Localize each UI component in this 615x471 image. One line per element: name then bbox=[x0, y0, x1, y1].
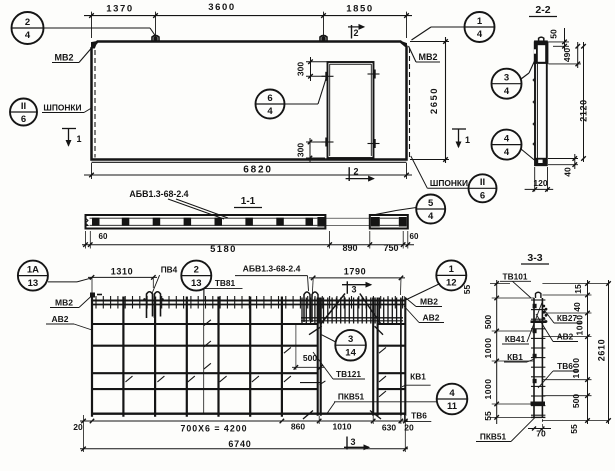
svg-text:5180: 5180 bbox=[210, 244, 237, 255]
svg-text:1370: 1370 bbox=[106, 4, 134, 15]
svg-text:55: 55 bbox=[569, 424, 579, 434]
svg-text:ШПОНКИ: ШПОНКИ bbox=[430, 178, 468, 188]
svg-text:6: 6 bbox=[267, 93, 272, 104]
svg-text:МВ2: МВ2 bbox=[418, 52, 437, 62]
svg-text:2650: 2650 bbox=[429, 87, 440, 114]
svg-text:6740: 6740 bbox=[228, 439, 251, 449]
svg-text:АВ2: АВ2 bbox=[51, 314, 68, 324]
svg-text:2: 2 bbox=[194, 264, 199, 275]
svg-text:4: 4 bbox=[504, 147, 510, 158]
svg-text:3600: 3600 bbox=[208, 2, 236, 13]
svg-text:2: 2 bbox=[25, 17, 30, 28]
svg-text:МВ2: МВ2 bbox=[420, 297, 438, 307]
svg-text:15: 15 bbox=[573, 284, 583, 294]
svg-text:860: 860 bbox=[291, 422, 305, 432]
svg-text:1: 1 bbox=[465, 135, 470, 145]
svg-text:6: 6 bbox=[480, 191, 485, 202]
svg-text:КВ1: КВ1 bbox=[410, 372, 426, 382]
svg-text:ТВ81: ТВ81 bbox=[215, 278, 236, 288]
svg-text:300: 300 bbox=[296, 143, 306, 157]
svg-text:4: 4 bbox=[504, 133, 510, 144]
svg-text:20: 20 bbox=[73, 422, 83, 432]
svg-text:890: 890 bbox=[342, 243, 357, 253]
svg-text:II: II bbox=[21, 101, 26, 112]
svg-text:750: 750 bbox=[383, 243, 398, 253]
svg-text:4: 4 bbox=[477, 29, 483, 40]
svg-text:2610: 2610 bbox=[597, 339, 607, 361]
svg-text:60: 60 bbox=[99, 232, 108, 241]
svg-text:4: 4 bbox=[267, 106, 273, 117]
svg-text:1: 1 bbox=[77, 134, 82, 144]
svg-text:ТВ101: ТВ101 bbox=[503, 272, 528, 282]
svg-text:500: 500 bbox=[571, 394, 581, 408]
svg-text:14: 14 bbox=[345, 347, 356, 358]
svg-text:12: 12 bbox=[446, 278, 457, 289]
svg-text:ШПОНКИ: ШПОНКИ bbox=[43, 103, 81, 113]
svg-text:630: 630 bbox=[382, 423, 396, 433]
svg-text:55: 55 bbox=[462, 285, 472, 295]
svg-text:500: 500 bbox=[483, 315, 493, 329]
svg-text:1850: 1850 bbox=[346, 4, 374, 15]
svg-text:ТВ6: ТВ6 bbox=[411, 410, 427, 420]
svg-text:700Х6 = 4200: 700Х6 = 4200 bbox=[180, 424, 247, 434]
svg-text:1000: 1000 bbox=[483, 379, 493, 400]
svg-text:2: 2 bbox=[353, 167, 358, 177]
svg-text:2120: 2120 bbox=[579, 99, 589, 121]
svg-text:13: 13 bbox=[28, 278, 39, 289]
svg-text:КВ27: КВ27 bbox=[557, 313, 578, 323]
svg-text:6: 6 bbox=[21, 114, 26, 125]
svg-text:4: 4 bbox=[449, 388, 455, 399]
svg-text:40: 40 bbox=[572, 302, 582, 312]
svg-text:1А: 1А bbox=[27, 264, 39, 275]
svg-text:МВ2: МВ2 bbox=[54, 53, 73, 63]
svg-text:490: 490 bbox=[562, 48, 572, 62]
svg-text:20: 20 bbox=[404, 423, 414, 433]
svg-text:АВ2: АВ2 bbox=[422, 313, 439, 323]
svg-text:55: 55 bbox=[483, 411, 493, 421]
svg-text:II: II bbox=[480, 177, 485, 188]
svg-text:3: 3 bbox=[351, 285, 356, 295]
svg-text:1-1: 1-1 bbox=[241, 196, 256, 207]
svg-text:АБВ1.3-68-2.4: АБВ1.3-68-2.4 bbox=[129, 189, 188, 199]
svg-text:4: 4 bbox=[504, 86, 510, 97]
svg-text:3: 3 bbox=[504, 73, 509, 84]
svg-text:50: 50 bbox=[549, 29, 559, 39]
svg-text:4: 4 bbox=[428, 211, 434, 222]
svg-text:1790: 1790 bbox=[344, 267, 366, 277]
svg-text:ПКВ51: ПКВ51 bbox=[338, 392, 365, 402]
svg-text:ТВ6: ТВ6 bbox=[557, 361, 573, 371]
svg-text:60: 60 bbox=[410, 232, 419, 241]
svg-text:КВ41: КВ41 bbox=[505, 334, 526, 344]
svg-text:1310: 1310 bbox=[111, 267, 133, 277]
svg-text:4: 4 bbox=[25, 30, 31, 41]
svg-text:МВ2: МВ2 bbox=[55, 298, 73, 308]
svg-text:3: 3 bbox=[348, 334, 353, 345]
svg-text:300: 300 bbox=[296, 62, 306, 76]
svg-text:2: 2 bbox=[353, 28, 358, 38]
svg-text:1: 1 bbox=[477, 16, 483, 27]
svg-text:2-2: 2-2 bbox=[535, 4, 550, 16]
svg-text:1: 1 bbox=[449, 264, 455, 275]
svg-text:АБВ1.3-68-2.4: АБВ1.3-68-2.4 bbox=[243, 264, 301, 274]
svg-text:ПВ4: ПВ4 bbox=[161, 265, 178, 275]
svg-text:3: 3 bbox=[350, 437, 355, 447]
svg-text:70: 70 bbox=[536, 429, 546, 439]
svg-text:6820: 6820 bbox=[243, 165, 272, 176]
svg-text:11: 11 bbox=[447, 401, 458, 412]
svg-text:ПКВ51: ПКВ51 bbox=[480, 432, 507, 442]
svg-text:КВ1: КВ1 bbox=[507, 352, 523, 362]
svg-text:1010: 1010 bbox=[333, 422, 352, 432]
svg-text:40: 40 bbox=[563, 167, 573, 177]
svg-text:120: 120 bbox=[533, 178, 547, 188]
svg-text:ТВ121: ТВ121 bbox=[336, 369, 361, 379]
svg-text:3-3: 3-3 bbox=[527, 252, 542, 264]
svg-text:АВ2: АВ2 bbox=[557, 332, 574, 342]
svg-text:1000: 1000 bbox=[483, 338, 493, 359]
svg-text:13: 13 bbox=[191, 278, 202, 289]
svg-text:5: 5 bbox=[428, 198, 434, 209]
